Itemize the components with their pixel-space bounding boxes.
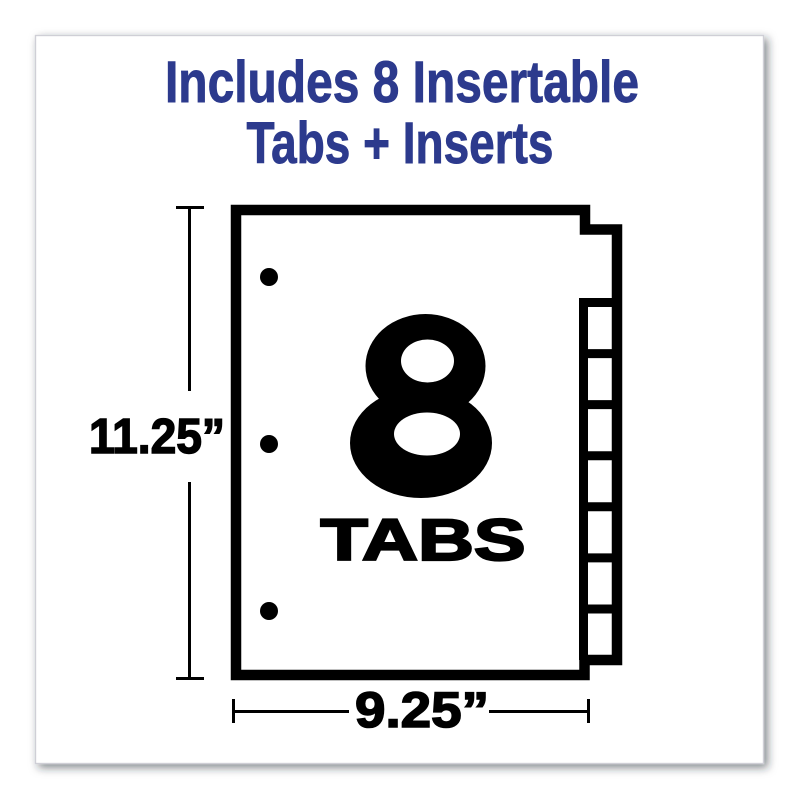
svg-text:11.25”: 11.25” — [89, 410, 225, 464]
svg-text:TABS: TABS — [321, 508, 526, 573]
svg-text:9.25”: 9.25” — [355, 682, 489, 738]
svg-text:Tabs + Inserts: Tabs + Inserts — [247, 111, 554, 176]
svg-text:Includes 8 Insertable: Includes 8 Insertable — [165, 50, 639, 115]
